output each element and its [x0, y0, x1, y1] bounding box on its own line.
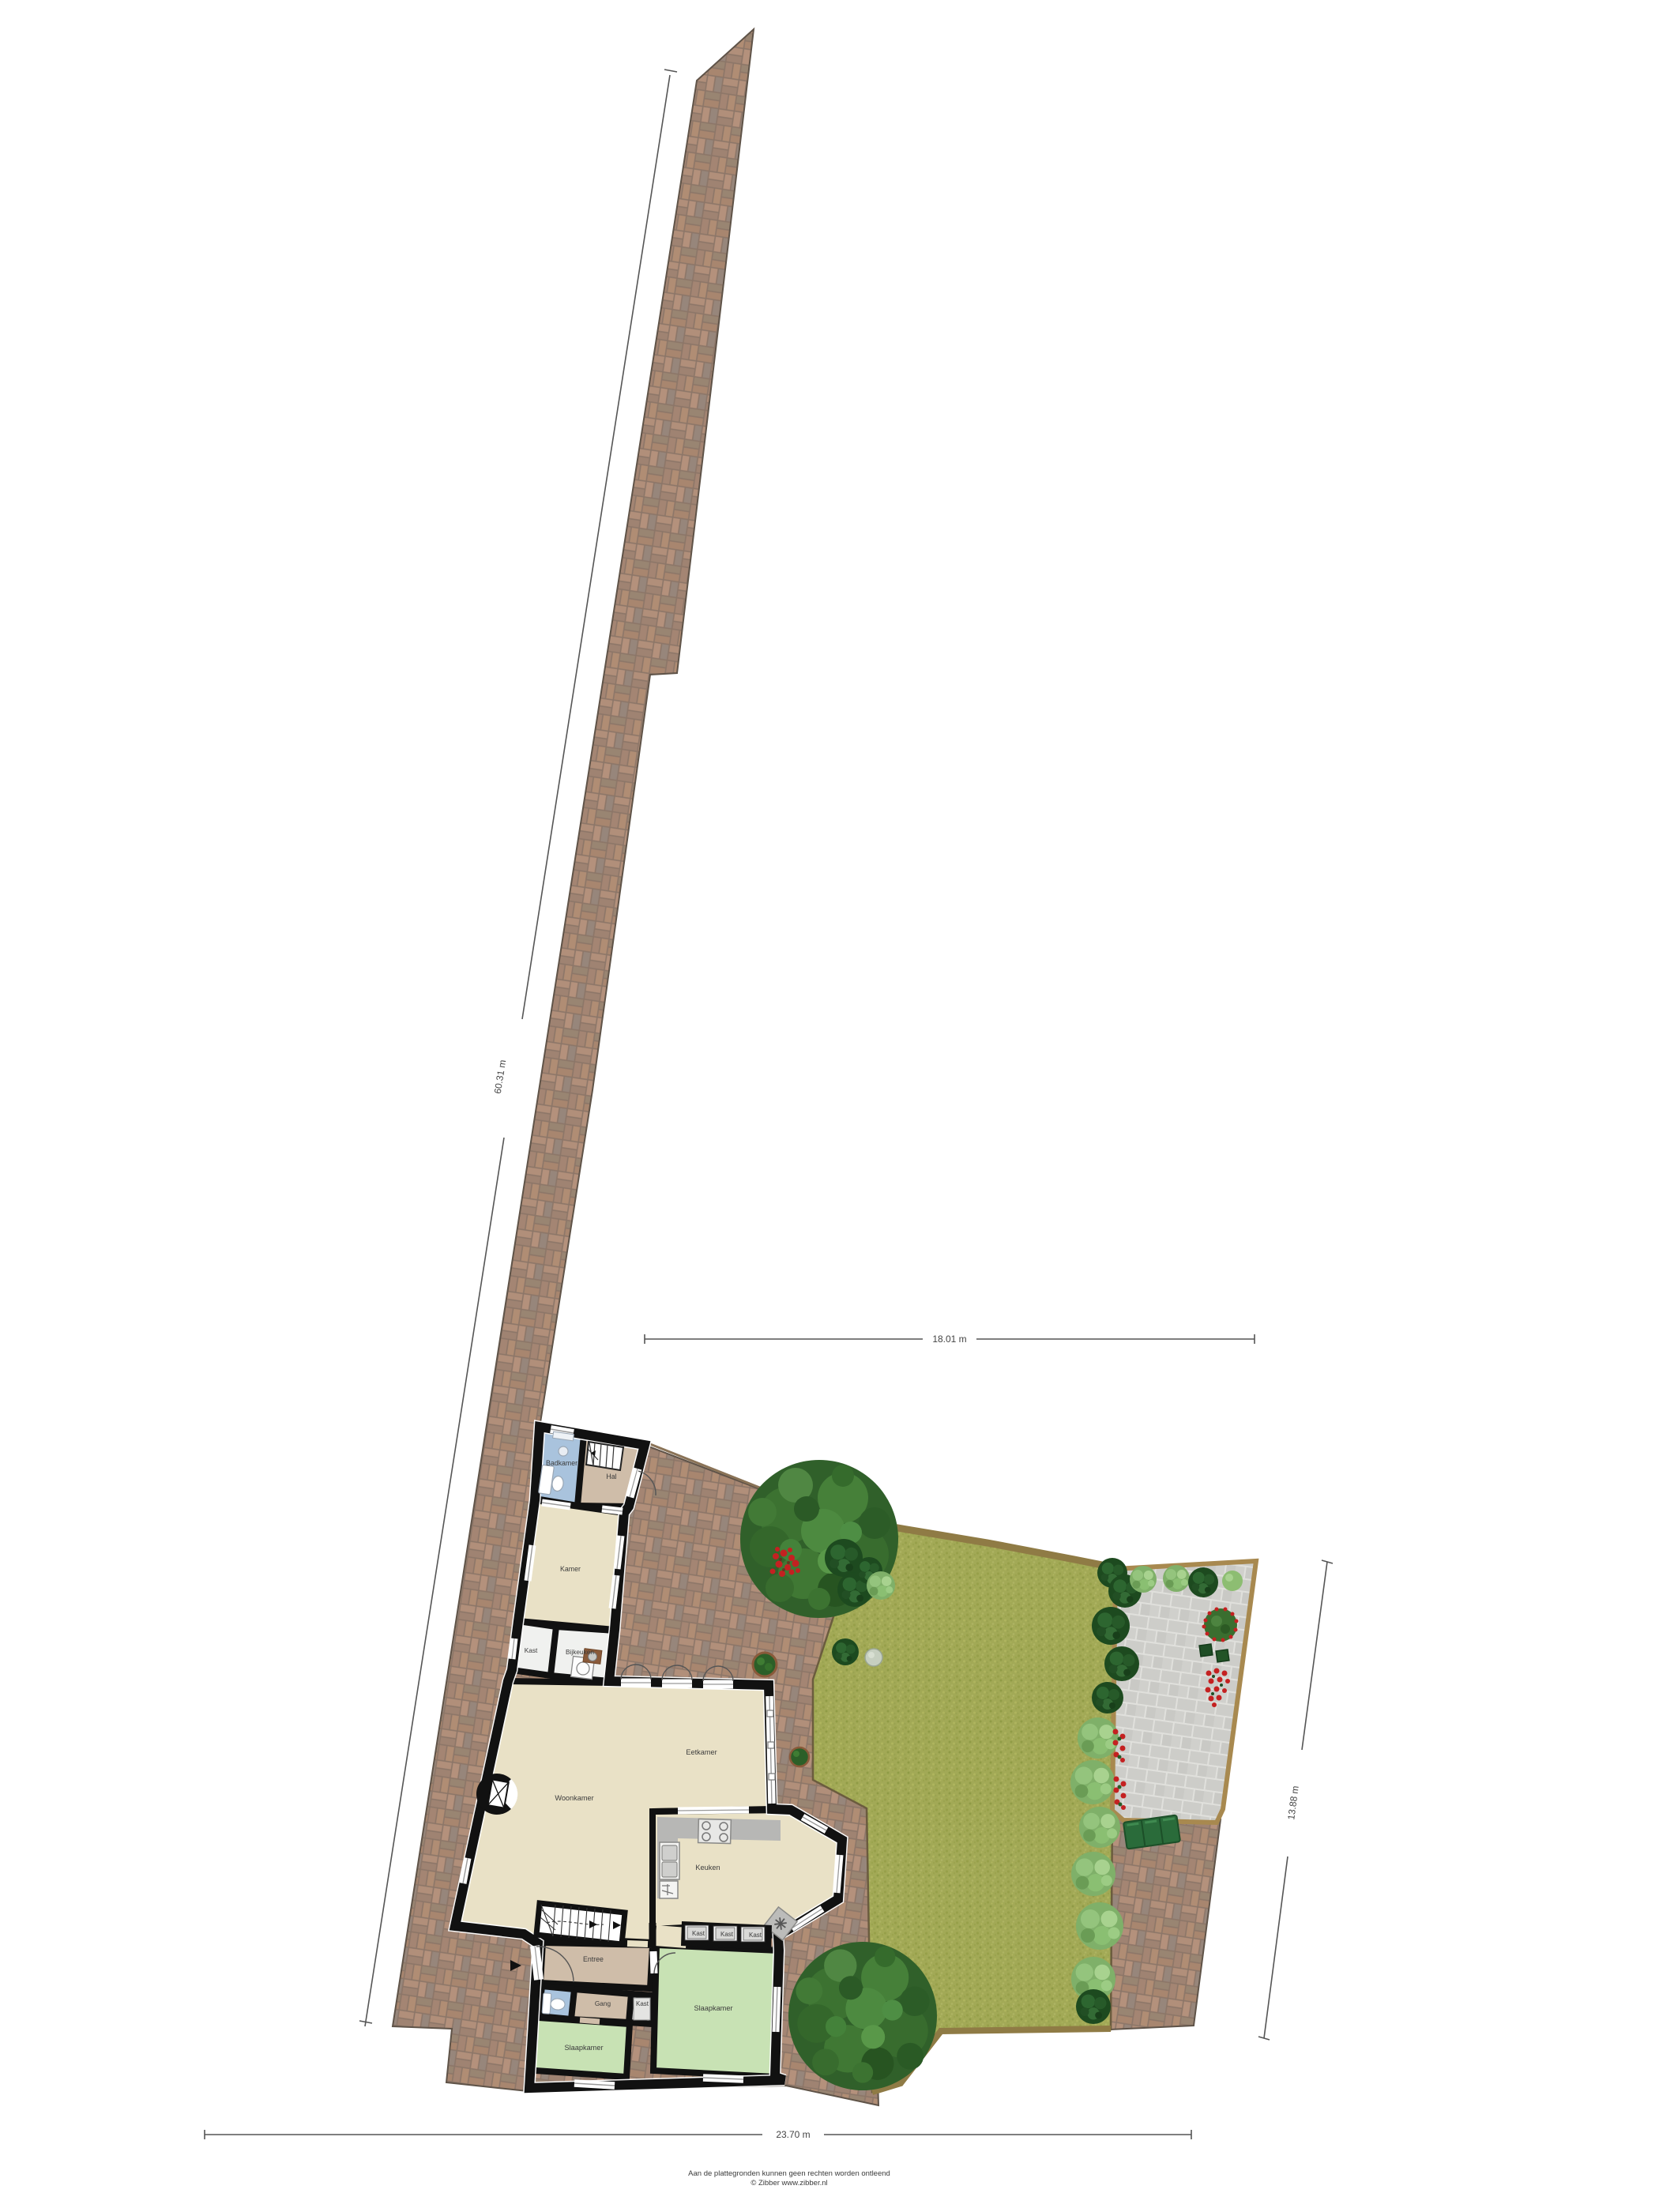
- svg-text:23.70 m: 23.70 m: [776, 2129, 810, 2140]
- svg-text:Kast: Kast: [692, 1930, 705, 1937]
- svg-text:Entree: Entree: [583, 1955, 604, 1963]
- svg-text:Gang: Gang: [595, 1999, 611, 2007]
- svg-text:Woonkamer: Woonkamer: [555, 1794, 593, 1802]
- svg-text:Bijkeuken: Bijkeuken: [566, 1648, 594, 1656]
- svg-text:© Zibber www.zibber.nl: © Zibber www.zibber.nl: [750, 2179, 827, 2188]
- svg-text:Kast: Kast: [525, 1646, 538, 1654]
- svg-text:60.31 m: 60.31 m: [492, 1059, 509, 1094]
- svg-text:Aan de plattegronden kunnen ge: Aan de plattegronden kunnen geen rechten…: [688, 2169, 890, 2178]
- svg-text:Kast: Kast: [720, 1931, 734, 1938]
- svg-text:Keuken: Keuken: [695, 1864, 720, 1872]
- svg-text:Hal: Hal: [606, 1473, 616, 1480]
- svg-text:Kast: Kast: [749, 1932, 762, 1939]
- svg-text:Badkamer: Badkamer: [546, 1459, 577, 1467]
- svg-text:Kamer: Kamer: [560, 1565, 581, 1573]
- svg-text:13.88 m: 13.88 m: [1285, 1785, 1301, 1821]
- svg-text:Slaapkamer: Slaapkamer: [564, 2044, 603, 2052]
- svg-text:Kast: Kast: [636, 2000, 649, 2007]
- svg-text:Eetkamer: Eetkamer: [686, 1748, 717, 1756]
- svg-text:Slaapkamer: Slaapkamer: [694, 2004, 732, 2012]
- svg-text:18.01 m: 18.01 m: [932, 1334, 966, 1345]
